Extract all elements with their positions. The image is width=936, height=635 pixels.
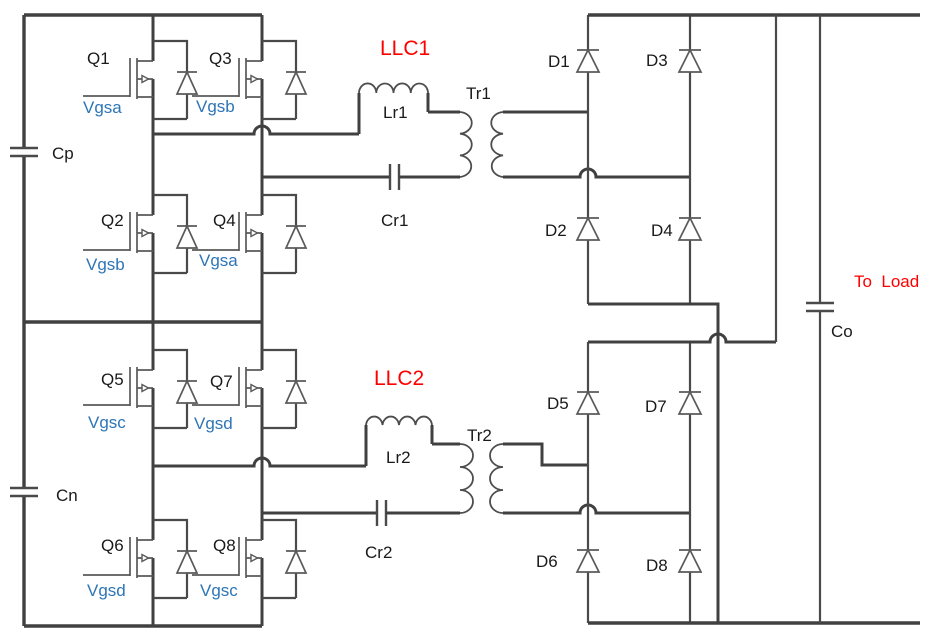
q1-gate-label: Vgsa: [83, 98, 122, 117]
q4-gate-label: Vgsa: [199, 251, 238, 270]
d7-diode-symbol: D7: [645, 392, 701, 416]
q1-label: Q1: [87, 49, 110, 68]
rectifier1-wires: [588, 15, 718, 623]
q5-mosfet-symbol: Q5 Vgsc: [83, 350, 197, 432]
d4-diode-symbol: D4: [651, 218, 701, 240]
d6-label: D6: [536, 552, 558, 571]
q5-label: Q5: [101, 370, 124, 389]
q4-label: Q4: [213, 211, 236, 230]
cr1-label: Cr1: [381, 211, 408, 230]
schematic-drawing: Cp Cn Q1 Vgsa Q3 Vgsb: [0, 0, 936, 635]
tr2-transformer-symbol: Tr2: [460, 426, 690, 513]
q7-gate-label: Vgsd: [194, 414, 233, 433]
q7-mosfet-symbol: Q7 Vgsd: [192, 350, 306, 433]
d8-diode-symbol: D8: [646, 550, 701, 575]
cr2-capacitor-symbol: Cr2: [365, 500, 460, 562]
q8-mosfet-symbol: Q8 Vgsc: [192, 520, 306, 600]
d5-diode-symbol: D5: [547, 392, 599, 414]
lr2-inductor-symbol: Lr2: [366, 417, 460, 467]
q2-gate-label: Vgsb: [86, 255, 125, 274]
d2-label: D2: [545, 221, 567, 240]
tank-node-wires: [153, 126, 390, 513]
d2-diode-symbol: D2: [545, 218, 599, 240]
lr2-label: Lr2: [386, 448, 411, 467]
q4-mosfet-symbol: Q4 Vgsa: [192, 195, 306, 273]
rectifier2-wires: [588, 334, 776, 623]
d3-diode-symbol: D3: [646, 50, 701, 72]
tr2-label: Tr2: [467, 426, 492, 445]
d3-label: D3: [646, 51, 668, 70]
q2-mosfet-symbol: Q2 Vgsb: [83, 195, 197, 274]
llc-converter-schematic: Cp Cn Q1 Vgsa Q3 Vgsb: [0, 0, 936, 635]
d6-diode-symbol: D6: [536, 550, 599, 572]
d1-label: D1: [548, 52, 570, 71]
lr1-label: Lr1: [383, 103, 408, 122]
cr2-label: Cr2: [365, 543, 392, 562]
q8-label: Q8: [213, 536, 236, 555]
d8-label: D8: [646, 556, 668, 575]
q3-mosfet-symbol: Q3 Vgsb: [192, 41, 306, 119]
llc2-title: LLC2: [374, 367, 424, 390]
q8-gate-label: Vgsc: [200, 581, 238, 600]
d1-diode-symbol: D1: [548, 50, 599, 72]
output-rails: [588, 15, 920, 623]
q6-gate-label: Vgsd: [87, 581, 126, 600]
cr1-capacitor-symbol: Cr1: [381, 164, 460, 230]
cp-capacitor-symbol: Cp: [10, 144, 74, 163]
tr1-label: Tr1: [466, 84, 491, 103]
lr1-inductor-symbol: Lr1: [359, 83, 460, 134]
cp-label: Cp: [52, 144, 74, 163]
cn-label: Cn: [56, 486, 78, 505]
q6-mosfet-symbol: Q6 Vgsd: [83, 520, 197, 600]
co-capacitor-symbol: Co: [806, 303, 853, 341]
d4-label: D4: [651, 221, 673, 240]
llc1-title: LLC1: [380, 37, 430, 60]
q6-label: Q6: [101, 536, 124, 555]
q3-gate-label: Vgsb: [196, 97, 235, 116]
q1-mosfet-symbol: Q1 Vgsa: [83, 41, 197, 119]
to-load-label: To Load: [854, 272, 919, 291]
q3-label: Q3: [209, 49, 232, 68]
q7-label: Q7: [210, 372, 233, 391]
q5-gate-label: Vgsc: [88, 413, 126, 432]
d5-label: D5: [547, 394, 569, 413]
co-label: Co: [831, 322, 853, 341]
cn-capacitor-symbol: Cn: [10, 486, 78, 505]
d7-label: D7: [645, 397, 667, 416]
tr1-transformer-symbol: Tr1: [460, 84, 690, 177]
q2-label: Q2: [101, 211, 124, 230]
